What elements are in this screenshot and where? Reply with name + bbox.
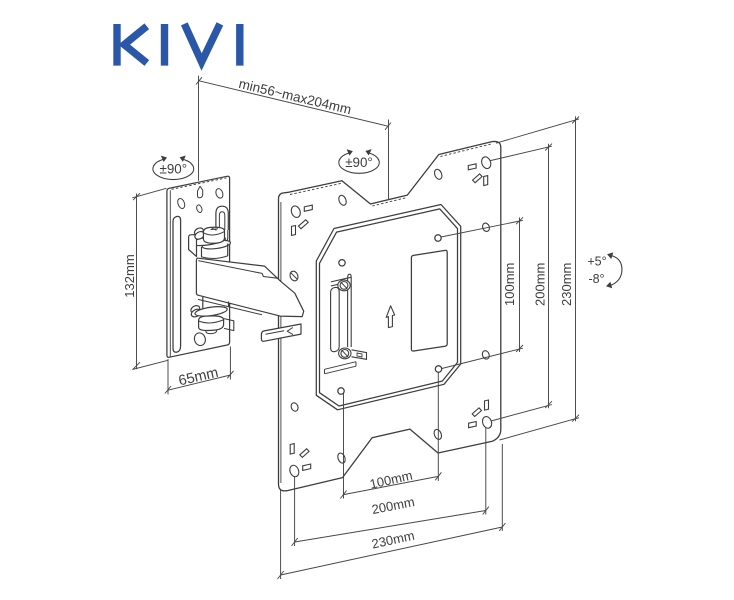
svg-text:200mm: 200mm [533,263,548,306]
svg-text:±90°: ±90° [345,155,373,170]
svg-text:±90°: ±90° [159,161,187,176]
svg-text:200mm: 200mm [370,494,415,517]
svg-text:230mm: 230mm [370,528,416,552]
svg-text:min56~max204mm: min56~max204mm [237,76,353,117]
svg-text:230mm: 230mm [559,263,574,306]
svg-text:100mm: 100mm [502,263,517,306]
svg-text:65mm: 65mm [177,365,220,390]
svg-text:+5°: +5° [587,255,606,269]
svg-text:-8°: -8° [588,272,604,286]
svg-text:132mm: 132mm [122,254,137,297]
svg-text:100mm: 100mm [368,468,414,492]
